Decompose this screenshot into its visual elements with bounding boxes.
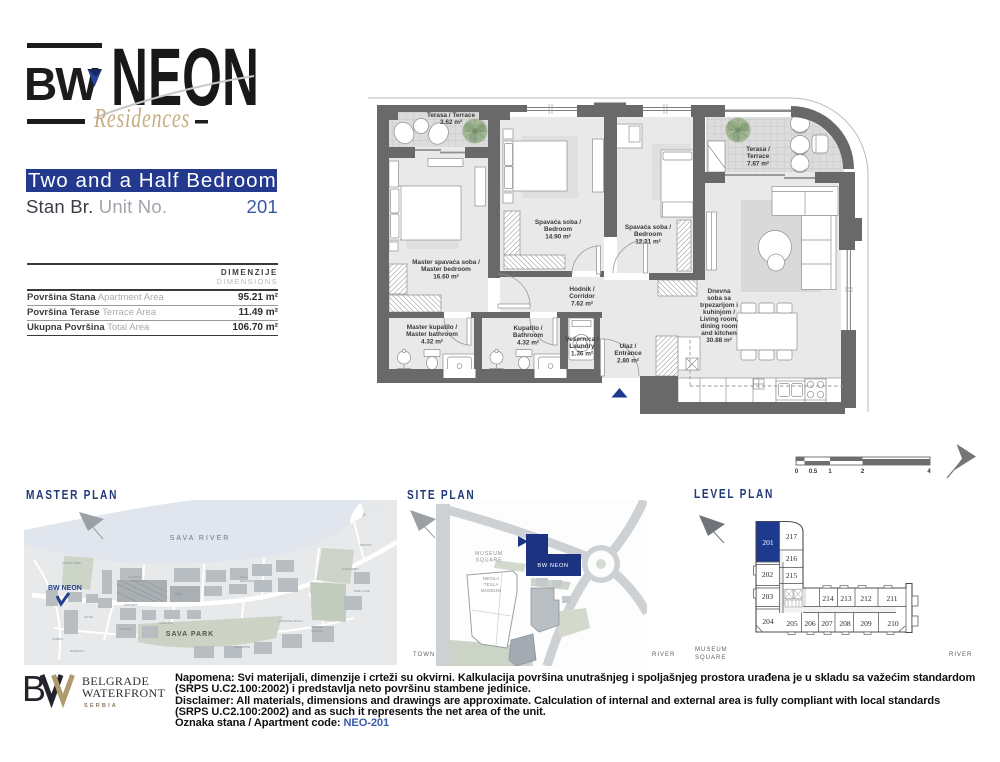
svg-text:0: 0 [795,469,799,475]
svg-text:Master spavaća soba /: Master spavaća soba / [412,259,480,266]
svg-text:MUSEUM: MUSEUM [481,588,502,593]
svg-text:3.62 m²: 3.62 m² [440,119,462,126]
svg-text:HOTEL: HOTEL [84,615,94,619]
svg-text:2: 2 [861,469,865,475]
svg-text:and kitchen: and kitchen [701,330,737,337]
svg-text:210: 210 [887,619,899,628]
svg-text:LEŽALJKE: LEŽALJKE [159,620,173,625]
svg-text:BEOGRAD: BEOGRAD [240,579,254,583]
svg-text:Vešernica /: Vešernica / [565,336,599,343]
svg-text:Hodnik /: Hodnik / [569,286,594,293]
svg-text:PANEL: PANEL [174,592,183,596]
svg-text:4.32 m²: 4.32 m² [421,339,443,346]
svg-text:BRISTOL: BRISTOL [360,543,372,547]
svg-text:Ulaz /: Ulaz / [620,343,637,350]
svg-text:BW: BW [24,58,99,110]
svg-text:Residences: Residences [93,103,190,133]
svg-text:STANICA: STANICA [311,629,323,633]
svg-text:BW NEON: BW NEON [537,563,568,569]
svg-text:212: 212 [860,594,872,603]
svg-text:NIKOLA: NIKOLA [483,576,501,581]
svg-text:ESPADA: ESPADA [52,637,63,641]
svg-text:SAVA PARK: SAVA PARK [166,631,214,638]
svg-text:soba sa: soba sa [707,295,731,302]
svg-text:207: 207 [821,619,833,628]
svg-text:Bathroom: Bathroom [513,332,543,339]
svg-text:30.88 m²: 30.88 m² [706,337,732,344]
svg-text:Laundry: Laundry [569,343,595,350]
svg-text:203: 203 [762,592,774,601]
svg-text:215: 215 [786,571,798,580]
svg-text:POZORIŠTE: POZORIŠTE [234,644,250,649]
svg-text:kuhinjom /: kuhinjom / [703,309,735,316]
svg-text:trpezarijom i: trpezarijom i [700,302,738,309]
svg-text:Terasa /: Terasa / [746,146,770,153]
svg-text:MARRIOTT: MARRIOTT [70,649,85,653]
svg-text:1.36 m²: 1.36 m² [571,351,593,358]
svg-text:DVOKOMBO: DVOKOMBO [342,567,359,571]
svg-text:4: 4 [927,469,931,475]
svg-text:208: 208 [839,619,851,628]
svg-text:213: 213 [840,594,852,603]
svg-text:Spavaća soba /: Spavaća soba / [625,224,671,231]
svg-text:Kupatilo /: Kupatilo / [513,325,542,332]
svg-text:4.32 m²: 4.32 m² [517,340,539,347]
svg-text:7.62 m²: 7.62 m² [571,301,593,308]
svg-text:Terrace: Terrace [747,153,770,160]
svg-text:Master bedroom: Master bedroom [421,266,471,273]
svg-text:1: 1 [828,469,832,475]
svg-text:Bedroom: Bedroom [544,226,572,233]
svg-text:217: 217 [786,532,798,541]
svg-text:0.5: 0.5 [809,469,818,475]
svg-text:PARKING: PARKING [119,627,131,631]
svg-text:216: 216 [786,554,798,563]
svg-text:SQUARE: SQUARE [476,558,503,564]
svg-text:204: 204 [762,617,774,626]
svg-text:Entrance: Entrance [614,350,642,357]
svg-text:Spavaća soba /: Spavaća soba / [535,219,581,226]
svg-text:OSNOVNA ŠKOLA: OSNOVNA ŠKOLA [279,618,303,623]
svg-text:Bedroom: Bedroom [634,231,662,238]
svg-text:205: 205 [786,619,798,628]
svg-text:TESLA: TESLA [484,582,499,587]
svg-text:Dnevna: Dnevna [707,288,731,295]
svg-text:201: 201 [762,538,774,547]
svg-text:Living room,: Living room, [700,316,739,323]
svg-text:7.87 m²: 7.87 m² [747,161,769,168]
svg-text:211: 211 [887,594,898,603]
svg-text:Terasa / Terrace: Terasa / Terrace [427,112,476,119]
svg-text:14.90 m²: 14.90 m² [545,234,571,241]
svg-text:PARK LUKE: PARK LUKE [354,589,370,593]
svg-text:BW NEON: BW NEON [48,585,82,592]
svg-text:FARMERS: FARMERS [124,603,138,607]
svg-text:Corridor: Corridor [569,293,595,300]
svg-text:Master kupatilo /: Master kupatilo / [407,324,458,331]
svg-text:206: 206 [804,619,816,628]
svg-text:16.60 m²: 16.60 m² [433,274,459,281]
svg-text:202: 202 [762,570,774,579]
svg-text:BEOGRAD: BEOGRAD [130,579,144,583]
svg-text:dining room: dining room [701,323,738,330]
svg-text:2.80 m²: 2.80 m² [617,358,639,365]
svg-text:214: 214 [822,594,834,603]
svg-text:Master bathroom: Master bathroom [406,331,458,338]
svg-text:MUSEUM: MUSEUM [475,551,503,557]
svg-text:LINIJSKI PARK: LINIJSKI PARK [62,561,81,565]
svg-text:209: 209 [860,619,872,628]
svg-text:12.21 m²: 12.21 m² [635,239,661,246]
svg-text:SAVA RIVER: SAVA RIVER [170,535,231,542]
